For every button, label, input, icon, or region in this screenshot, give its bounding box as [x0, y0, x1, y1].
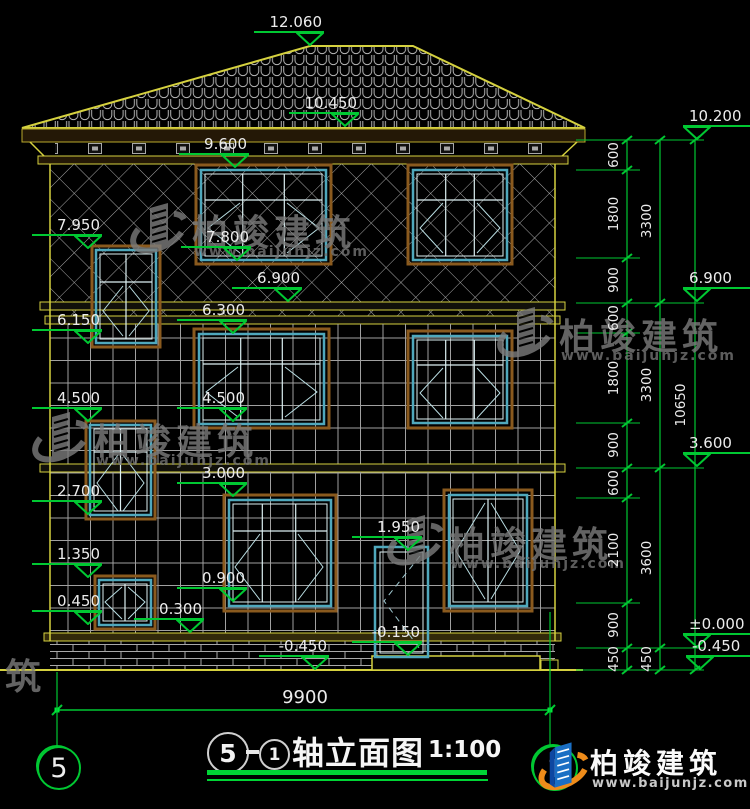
drawing-scale: 1:100: [428, 737, 501, 763]
level-triangle-icon: [176, 619, 204, 633]
elevation-value: 12.060: [254, 14, 324, 30]
title-axis-to-bubble: 1: [259, 739, 290, 770]
elevation-marker: 10.200: [683, 108, 750, 140]
level-triangle-icon: [219, 588, 247, 602]
level-triangle-icon: [686, 656, 714, 670]
elevation-value: 4.500: [32, 390, 102, 406]
elevation-marker: 1.950: [352, 519, 422, 551]
elevation-marker: 7.950: [32, 217, 102, 249]
elevation-value: 1.950: [352, 519, 422, 535]
elevation-value: ±0.000: [683, 616, 750, 632]
level-triangle-icon: [74, 564, 102, 578]
level-triangle-icon: [74, 611, 102, 625]
elevation-value: 3.000: [177, 465, 247, 481]
elevation-value: -0.450: [686, 638, 750, 654]
elevation-value: 0.300: [134, 601, 204, 617]
elevation-value: 7.800: [181, 229, 251, 245]
dimension-label: 10650: [672, 375, 690, 435]
elevation-value: 2.700: [32, 483, 102, 499]
level-triangle-icon: [683, 126, 711, 140]
elevation-marker: 2.700: [32, 483, 102, 515]
drawing-title: 轴立面图: [292, 728, 424, 774]
dimension-label: 3300: [638, 355, 656, 415]
elevation-drawing-canvas: 9900 5 1 5 1 轴立面图 1:100: [0, 0, 750, 809]
dimension-label: 3600: [638, 528, 656, 588]
elevation-value: 3.600: [683, 435, 750, 451]
elevation-marker: 4.500: [177, 390, 247, 422]
elevation-value: 0.450: [32, 593, 102, 609]
dimension-label: 3300: [638, 191, 656, 251]
elevation-marker: 10.450: [289, 95, 359, 127]
level-triangle-icon: [394, 642, 422, 656]
elevation-marker: 6.900: [232, 270, 302, 302]
elevation-marker: 12.060: [254, 14, 324, 46]
watermark-text: 建筑: [0, 648, 46, 700]
dimension-label: 600: [605, 453, 623, 513]
elevation-marker: -0.450: [686, 638, 750, 670]
company-url: www.baijunjz.com: [592, 776, 749, 791]
elevation-value: 6.900: [683, 270, 750, 286]
title-dash: [246, 750, 259, 754]
overall-width-dimension: 9900: [262, 687, 348, 708]
elevation-value: 7.950: [32, 217, 102, 233]
title-underline-thick: [207, 770, 487, 775]
elevation-value: -0.450: [259, 638, 329, 654]
grid-axis-bubble-5: 5: [37, 746, 81, 790]
elevation-marker: 4.500: [32, 390, 102, 422]
elevation-value: 10.450: [289, 95, 359, 111]
elevation-marker: 6.150: [32, 312, 102, 344]
level-triangle-icon: [221, 154, 249, 168]
level-triangle-icon: [296, 32, 324, 46]
level-triangle-icon: [301, 656, 329, 670]
grid-axis-number: 5: [50, 753, 67, 784]
watermark-logo-icon: [495, 300, 557, 368]
level-triangle-icon: [74, 501, 102, 515]
elevation-marker: 6.300: [177, 302, 247, 334]
elevation-marker: 9.600: [179, 136, 249, 168]
dimension-label: 600: [605, 125, 623, 185]
title-axis-from-bubble: 5: [207, 732, 249, 774]
level-triangle-icon: [223, 247, 251, 261]
level-triangle-icon: [74, 330, 102, 344]
level-triangle-icon: [683, 288, 711, 302]
elevation-value: 6.150: [32, 312, 102, 328]
dimension-label: 450: [638, 629, 656, 689]
level-triangle-icon: [74, 235, 102, 249]
elevation-value: 6.900: [232, 270, 302, 286]
elevation-marker: 0.450: [32, 593, 102, 625]
elevation-value: 10.200: [683, 108, 750, 124]
elevation-marker: 0.900: [177, 570, 247, 602]
elevation-marker: 6.900: [683, 270, 750, 302]
level-triangle-icon: [331, 113, 359, 127]
dimension-label: 600: [605, 288, 623, 348]
level-triangle-icon: [74, 408, 102, 422]
dimension-label: 1800: [605, 348, 623, 408]
elevation-value: 0.900: [177, 570, 247, 586]
belt-course: [45, 316, 560, 324]
elevation-marker: 7.800: [181, 229, 251, 261]
elevation-marker: 3.000: [177, 465, 247, 497]
title-axis-to: 1: [269, 745, 281, 765]
level-triangle-icon: [219, 320, 247, 334]
elevation-value: 1.350: [32, 546, 102, 562]
elevation-marker: 3.600: [683, 435, 750, 467]
elevation-marker: -0.150: [352, 624, 422, 656]
watermark-url: www.baijunjz.com: [451, 556, 626, 572]
dimension-label: 450: [605, 629, 623, 689]
elevation-marker: 1.350: [32, 546, 102, 578]
title-underline-thin: [207, 779, 488, 781]
floor-band-6900: [40, 302, 565, 310]
elevation-marker: -0.450: [259, 638, 329, 670]
elevation-value: 9.600: [179, 136, 249, 152]
title-axis-from: 5: [219, 739, 236, 768]
level-triangle-icon: [219, 483, 247, 497]
elevation-value: 6.300: [177, 302, 247, 318]
level-triangle-icon: [219, 408, 247, 422]
elevation-value: 4.500: [177, 390, 247, 406]
level-triangle-icon: [274, 288, 302, 302]
level-triangle-icon: [683, 453, 711, 467]
dimension-label: 1800: [605, 184, 623, 244]
level-triangle-icon: [394, 537, 422, 551]
elevation-value: -0.150: [352, 624, 422, 640]
dimension-label: 2100: [605, 520, 623, 580]
company-logo-icon: [538, 734, 590, 800]
elevation-marker: 0.300: [134, 601, 204, 633]
